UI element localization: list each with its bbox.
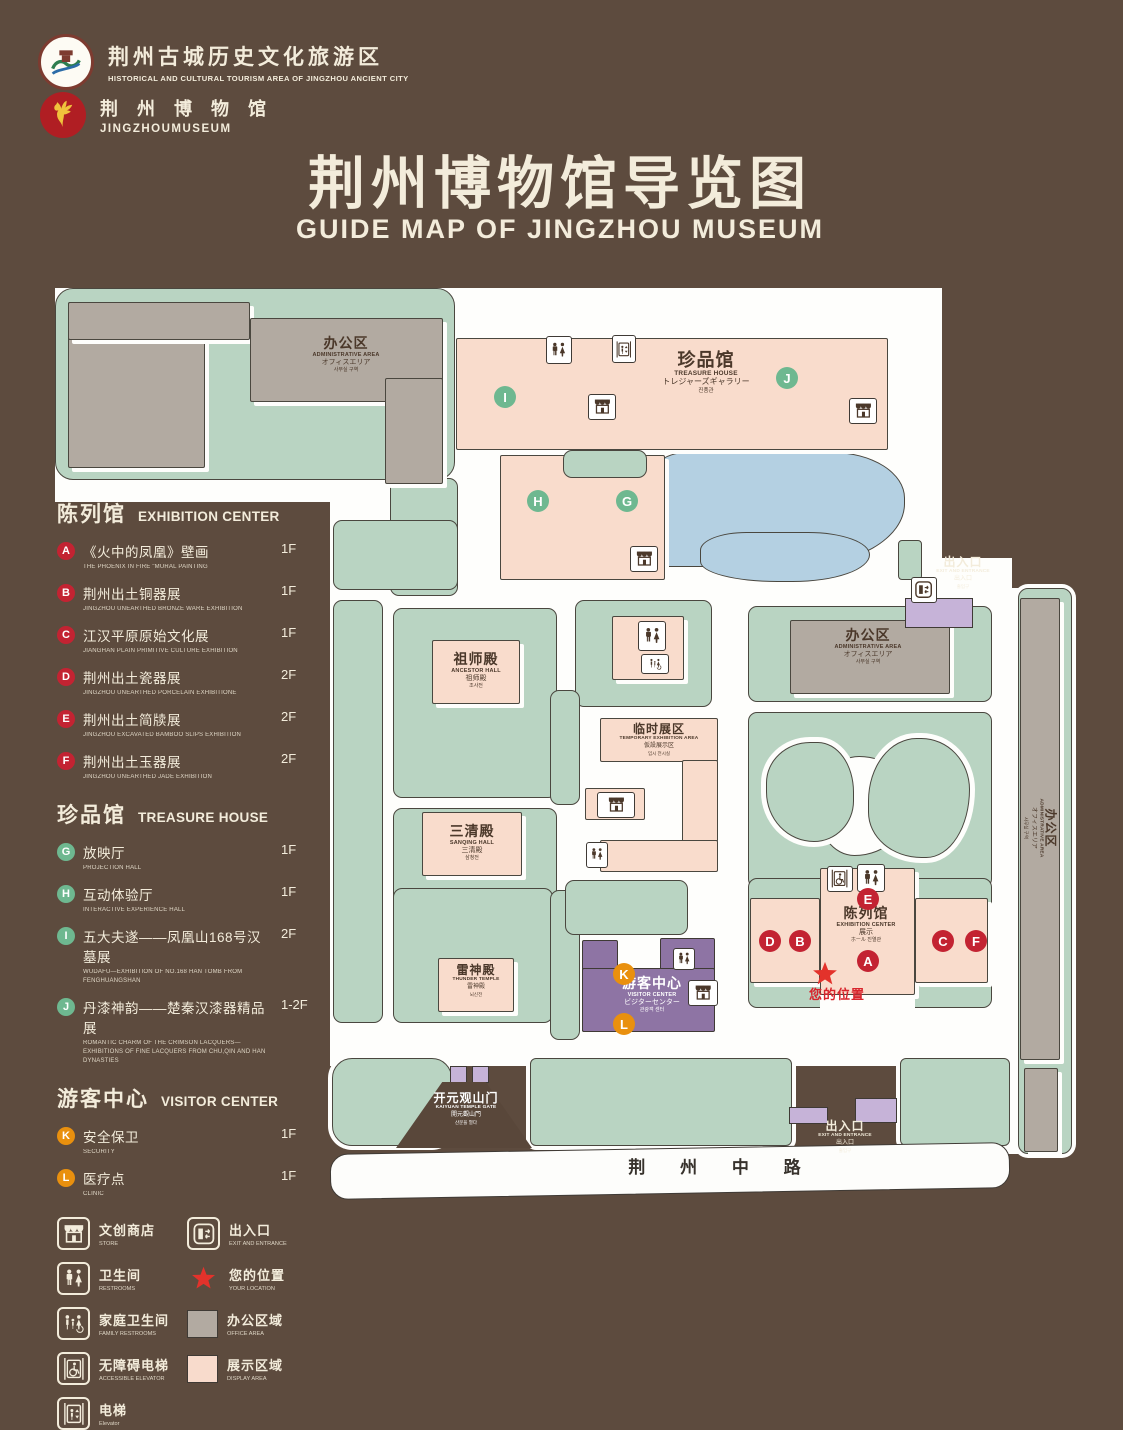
marker-K: K [613, 963, 635, 985]
legend-item-floor: 1F [279, 583, 311, 598]
label-admin-right-kr: 사무실 구역 [834, 660, 901, 666]
legend-item-zh: 荆州出土简牍展 [83, 709, 271, 729]
legend-symbol-en: Elevator [99, 1421, 127, 1427]
label-road-name-zh: 荆 州 中 路 [628, 1158, 815, 1177]
garden-island-right [868, 738, 970, 858]
label-exit-top-right: 出入口EXIT AND ENTRANCE出入口출입구 [936, 556, 990, 589]
legend-symbol-store: 文创商店STORE [57, 1217, 181, 1250]
label-admin-top-left: 办公区ADMINISTRATIVE AREAオフィスエリア사무실 구역 [312, 336, 379, 373]
label-admin-right-zh: 办公区 [834, 628, 901, 644]
page-title-en: GUIDE MAP OF JINGZHOU MUSEUM [296, 214, 824, 245]
legend-item-B: B荆州出土铜器展JINGZHOU UNEARTHED BRONZE WARE E… [57, 583, 311, 614]
label-ancestor-hall: 祖师殿ANCESTOR HALL祖师殿조사전 [451, 652, 501, 689]
store-glyph-icon [634, 549, 655, 568]
legend-item-en: PROJECTION HALL [83, 864, 271, 873]
label-exhibition-center-en: EXHIBITION CENTER [836, 922, 895, 928]
legend-symbol-en: ACCESSIBLE ELEVATOR [99, 1376, 169, 1382]
label-treasure-house-jp: トレジャーズギャラリー [662, 378, 749, 387]
label-admin-right: 办公区ADMINISTRATIVE AREAオフィスエリア사무실 구역 [834, 628, 901, 665]
legend-item-E: E荆州出土简牍展JINGZHOU EXCAVATED BAMBOO SLIPS … [57, 709, 311, 740]
legend-item-floor: 2F [279, 926, 311, 941]
legend-item-C: C江汉平原原始文化展JIANGHAN PLAIN PRIMITIVE CULTU… [57, 625, 311, 656]
legend-symbol-elevator: 电梯Elevator [57, 1397, 181, 1430]
marker-E: E [857, 888, 879, 910]
legend-item-D: D荆州出土瓷器展JINGZHOU UNEARTHED PORCELAIN EXH… [57, 667, 311, 698]
legend-symbol-zh: 文创商店 [99, 1220, 155, 1239]
label-sanqing-hall-zh: 三清殿 [450, 824, 495, 840]
label-kaiyuan-gate-kr: 산문을 열다 [433, 1120, 498, 1125]
restroom-glyph-icon [676, 951, 692, 967]
legend-symbols: 文创商店STORE出入口EXIT AND ENTRANCE卫生间RESTROOM… [57, 1217, 311, 1430]
legend-item-floor: 1F [279, 1126, 311, 1141]
legend-item-floor: 1F [279, 1168, 311, 1183]
building-admin-strip-2 [1024, 1068, 1058, 1152]
legend-badge-K: K [57, 1127, 75, 1145]
legend-symbol-star: 您的位置YOUR LOCATION [187, 1262, 311, 1295]
legend-symbol-text: 文创商店STORE [99, 1220, 155, 1247]
legend-symbol-text: 卫生间RESTROOMS [99, 1265, 141, 1292]
legend-badge-D: D [57, 668, 75, 686]
restroom-icon [546, 336, 572, 364]
legend-section-header: 游客中心VISITOR CENTER [57, 1083, 311, 1113]
legend-badge-E: E [57, 710, 75, 728]
your-location-icon [187, 1262, 220, 1295]
family-icon [641, 654, 669, 674]
marker-B: B [789, 930, 811, 952]
label-admin-strip-kr: 사무실 구역 [1024, 799, 1029, 858]
plot-temp-bottom [565, 880, 688, 935]
label-temporary-exhibition: 临时展区TEMPORARY EXHIBITION AREA仮設展示区임시 전시실 [620, 723, 699, 756]
label-admin-right-en: ADMINISTRATIVE AREA [834, 644, 901, 650]
legend-item-text: 安全保卫SECURITY [83, 1126, 271, 1157]
plot-temp-strip-a [550, 690, 580, 805]
label-kaiyuan-gate-en: KAIYUAN TEMPLE GATE [433, 1105, 498, 1110]
family-glyph-icon [62, 1312, 86, 1336]
legend-item-zh: 丹漆神韵——楚秦汉漆器精品展 [83, 997, 271, 1037]
store-icon [597, 792, 635, 818]
legend-item-floor: 1F [279, 842, 311, 857]
legend-symbol-text: 电梯Elevator [99, 1400, 127, 1427]
label-temporary-exhibition-kr: 임시 전시실 [620, 751, 699, 756]
legend-symbol-text: 您的位置YOUR LOCATION [229, 1265, 285, 1292]
lake-lobe [700, 532, 870, 582]
building-temp-right [682, 760, 718, 842]
tourism-area-logo: 荆州古城历史文化旅游区 HISTORICAL AND CULTURAL TOUR… [38, 34, 409, 90]
exit-glyph-icon [914, 580, 933, 599]
legend-item-zh: 放映厅 [83, 842, 271, 862]
legend-item-I: I五大夫遂——凤凰山168号汉墓展WUDAFU—EXHIBITION OF NO… [57, 926, 311, 986]
legend-symbol-en: EXIT AND ENTRANCE [229, 1241, 287, 1247]
legend-item-zh: 五大夫遂——凤凰山168号汉墓展 [83, 926, 271, 966]
legend-item-zh: 互动体验厅 [83, 884, 271, 904]
legend-item-zh: 荆州出土瓷器展 [83, 667, 271, 687]
legend-item-zh: 安全保卫 [83, 1126, 271, 1146]
legend-symbol-zh: 卫生间 [99, 1265, 141, 1284]
legend-item-en: THE PHOENIX IN FIRE "MURAL PAINTING [83, 563, 271, 572]
building-temp-bottom [600, 840, 718, 872]
plot-left-column [333, 600, 383, 1023]
museum-name-en: JINGZHOUMUSEUM [100, 123, 273, 135]
legend-item-zh: 荆州出土铜器展 [83, 583, 271, 603]
legend-symbol-en: FAMILY RESTROOMS [99, 1331, 169, 1337]
label-exhibition-center: 陈列馆EXHIBITION CENTER展示ホール 진열관 [836, 906, 895, 943]
label-your-location: 您的位置 [809, 988, 865, 1003]
legend-section-title-en: TREASURE HOUSE [138, 810, 268, 825]
legend-item-en: JINGZHOU UNEARTHED PORCELAIN EXHIBITIONE [83, 689, 271, 698]
legend-item-floor: 2F [279, 709, 311, 724]
legend-item-en: WUDAFU—EXHIBITION OF NO.168 HAN TOMB FRO… [83, 968, 271, 986]
label-ancestor-hall-kr: 조사전 [451, 684, 501, 690]
store-glyph-icon [62, 1222, 86, 1246]
legend-badge-C: C [57, 626, 75, 644]
legend-item-L: L医疗点CLINIC1F [57, 1168, 311, 1199]
label-visitor-center-jp: ビジターセンター [622, 999, 682, 1007]
legend-badge-I: I [57, 927, 75, 945]
legend-item-en: ROMANTIC CHARM OF THE CRIMSON LACQUERS—E… [83, 1039, 271, 1066]
legend-item-J: J丹漆神韵——楚秦汉漆器精品展ROMANTIC CHARM OF THE CRI… [57, 997, 311, 1066]
label-temporary-exhibition-zh: 临时展区 [620, 723, 699, 736]
label-exit-top-right-jp: 出入口 [936, 576, 990, 583]
building-admin-tl-b [68, 302, 250, 340]
marker-I: I [494, 386, 516, 408]
exit-glyph-icon [192, 1222, 216, 1246]
legend-item-zh: 荆州出土玉器展 [83, 751, 271, 771]
garden-island-left [766, 742, 854, 842]
legend-item-en: SECURITY [83, 1148, 271, 1157]
legend-symbol-zh: 出入口 [229, 1220, 287, 1239]
legend-item-H: H互动体验厅INTERACTIVE EXPERIENCE HALL1F [57, 884, 311, 915]
label-thunder-temple-zh: 雷神殿 [452, 964, 499, 977]
label-admin-strip-jp: オフィスエリア [1030, 799, 1037, 858]
marker-F: F [965, 930, 987, 952]
restroom-glyph-icon [642, 625, 663, 647]
legend-item-floor: 2F [279, 667, 311, 682]
label-ancestor-hall-zh: 祖师殿 [451, 652, 501, 668]
label-sanqing-hall-en: SANQING HALL [450, 840, 495, 846]
store-icon [688, 980, 718, 1006]
plot-mid-left-upper [333, 520, 458, 590]
legend-section-header: 珍品馆TREASURE HOUSE [57, 799, 311, 829]
strip-bottom-right [900, 1058, 1010, 1146]
family-icon [57, 1307, 90, 1340]
legend-symbol-en: YOUR LOCATION [229, 1286, 285, 1292]
legend-item-en: INTERACTIVE EXPERIENCE HALL [83, 906, 271, 915]
legend-section-title-en: VISITOR CENTER [161, 1094, 278, 1109]
elevator-glyph-icon [615, 339, 633, 360]
your-location-star-icon [811, 960, 839, 988]
legend-item-text: 荆州出土铜器展JINGZHOU UNEARTHED BRONZE WARE EX… [83, 583, 271, 614]
legend-symbol-office: 办公区域OFFICE AREA [187, 1307, 311, 1340]
legend-symbol-en: RESTROOMS [99, 1286, 141, 1292]
label-temporary-exhibition-jp: 仮設展示区 [620, 743, 699, 750]
tourism-area-name-en: HISTORICAL AND CULTURAL TOURISM AREA OF … [108, 74, 409, 83]
legend-item-zh: 医疗点 [83, 1168, 271, 1188]
label-sanqing-hall-kr: 삼청전 [450, 856, 495, 862]
legend-sidebar: 陈列馆EXHIBITION CENTERA《火中的凤凰》壁画THE PHOENI… [57, 498, 311, 1430]
label-visitor-center-kr: 관광객 센터 [622, 1008, 682, 1014]
label-thunder-temple-jp: 雷神殿 [452, 984, 499, 991]
marker-J: J [776, 367, 798, 389]
label-admin-strip-zh: 办公区 [1043, 799, 1056, 858]
legend-item-floor: 2F [279, 751, 311, 766]
legend-item-en: JIANGHAN PLAIN PRIMITIVE CULTURE EXHIBIT… [83, 647, 271, 656]
elevator-glyph-icon [62, 1402, 86, 1426]
legend-symbol-en: OFFICE AREA [227, 1331, 283, 1337]
label-exit-top-right-zh: 出入口 [936, 556, 990, 569]
museum-name-zh: 荆 州 博 物 馆 [100, 95, 273, 121]
label-treasure-house-zh: 珍品馆 [662, 350, 749, 370]
legend-symbol-text: 出入口EXIT AND ENTRANCE [229, 1220, 287, 1247]
legend-badge-B: B [57, 584, 75, 602]
label-sanqing-hall-jp: 三清殿 [450, 847, 495, 855]
accessible-glyph-icon [62, 1357, 86, 1381]
gate-pillar-2 [472, 1066, 489, 1083]
legend-badge-H: H [57, 885, 75, 903]
tourism-area-name-zh: 荆州古城历史文化旅游区 [108, 41, 409, 71]
label-exit-bottom-right-en: EXIT AND ENTRANCE [818, 1133, 872, 1138]
legend-item-text: 荆州出土玉器展JINGZHOU UNEARTHED JADE EXHIBITIO… [83, 751, 271, 782]
legend-badge-F: F [57, 752, 75, 770]
legend-item-text: 医疗点CLINIC [83, 1168, 271, 1199]
display-swatch [187, 1355, 218, 1383]
restroom-glyph-icon [62, 1267, 86, 1291]
store-glyph-icon [602, 795, 631, 814]
legend-item-text: 互动体验厅INTERACTIVE EXPERIENCE HALL [83, 884, 271, 915]
legend-item-zh: 江汉平原原始文化展 [83, 625, 271, 645]
label-kaiyuan-gate-zh: 开元观山门 [433, 1092, 498, 1105]
accessible-icon [827, 866, 853, 892]
label-admin-top-left-en: ADMINISTRATIVE AREA [312, 352, 379, 358]
legend-symbol-text: 无障碍电梯ACCESSIBLE ELEVATOR [99, 1355, 169, 1382]
legend-section-title-zh: 游客中心 [57, 1083, 149, 1113]
legend-item-text: 《火中的凤凰》壁画THE PHOENIX IN FIRE "MURAL PAIN… [83, 541, 271, 572]
restroom-icon [57, 1262, 90, 1295]
exit-icon [187, 1217, 220, 1250]
restroom-glyph-icon [589, 845, 605, 864]
gate-pillar-1 [450, 1066, 467, 1083]
marker-L: L [613, 1013, 635, 1035]
legend-item-text: 丹漆神韵——楚秦汉漆器精品展ROMANTIC CHARM OF THE CRIM… [83, 997, 271, 1066]
label-ancestor-hall-jp: 祖师殿 [451, 675, 501, 683]
label-exhibition-center-kr: ホール 진열관 [836, 938, 895, 944]
restroom-glyph-icon [861, 868, 882, 889]
legend-symbol-text: 办公区域OFFICE AREA [227, 1310, 283, 1337]
label-sanqing-hall: 三清殿SANQING HALL三清殿삼청전 [450, 824, 495, 861]
museum-logo: 荆 州 博 物 馆 JINGZHOUMUSEUM [40, 92, 273, 138]
legend-item-text: 江汉平原原始文化展JIANGHAN PLAIN PRIMITIVE CULTUR… [83, 625, 271, 656]
legend-symbol-zh: 电梯 [99, 1400, 127, 1419]
legend-badge-L: L [57, 1169, 75, 1187]
legend-section-title-zh: 陈列馆 [57, 498, 126, 528]
accessible-glyph-icon [830, 869, 849, 888]
label-admin-right-jp: オフィスエリア [834, 651, 901, 659]
label-exit-bottom-right-kr: 출입구 [818, 1148, 872, 1153]
legend-item-G: G放映厅PROJECTION HALL1F [57, 842, 311, 873]
store-icon [57, 1217, 90, 1250]
tourism-area-emblem-icon [38, 34, 94, 90]
label-exit-top-right-kr: 출입구 [936, 584, 990, 589]
family-glyph-icon [645, 657, 666, 671]
building-admin-tl-d [385, 378, 443, 484]
label-treasure-house: 珍品馆TREASURE HOUSEトレジャーズギャラリー진품관 [662, 350, 749, 395]
legend-symbol-zh: 无障碍电梯 [99, 1355, 169, 1374]
restroom-icon [586, 842, 608, 868]
legend-symbol-accessible: 无障碍电梯ACCESSIBLE ELEVATOR [57, 1352, 181, 1385]
label-exit-bottom-right: 出入口EXIT AND ENTRANCE出入口출입구 [818, 1120, 872, 1153]
legend-item-F: F荆州出土玉器展JINGZHOU UNEARTHED JADE EXHIBITI… [57, 751, 311, 782]
legend-item-text: 放映厅PROJECTION HALL [83, 842, 271, 873]
star-glyph-icon [190, 1265, 217, 1292]
plot-treasure-strip [563, 450, 647, 478]
elevator-icon [57, 1397, 90, 1430]
legend-item-floor: 1-2F [279, 997, 311, 1012]
restroom-glyph-icon [549, 340, 568, 361]
legend-item-en: CLINIC [83, 1190, 271, 1199]
label-kaiyuan-gate: 开元观山门KAIYUAN TEMPLE GATE開元觀山門산문을 열다 [433, 1092, 498, 1125]
legend-symbol-exit: 出入口EXIT AND ENTRANCE [187, 1217, 311, 1250]
marker-H: H [527, 490, 549, 512]
exit-icon [911, 577, 937, 603]
museum-emblem-icon [40, 92, 86, 138]
legend-symbol-zh: 办公区域 [227, 1310, 283, 1329]
label-thunder-temple-kr: 뇌신전 [452, 992, 499, 997]
legend-symbol-family: 家庭卫生间FAMILY RESTROOMS [57, 1307, 181, 1340]
label-exit-top-right-en: EXIT AND ENTRANCE [936, 569, 990, 574]
label-admin-top-left-jp: オフィスエリア [312, 359, 379, 367]
legend-item-text: 荆州出土瓷器展JINGZHOU UNEARTHED PORCELAIN EXHI… [83, 667, 271, 698]
restroom-icon [638, 621, 666, 651]
label-admin-top-left-kr: 사무실 구역 [312, 368, 379, 374]
store-icon [588, 394, 616, 420]
legend-item-floor: 1F [279, 541, 311, 556]
legend-badge-J: J [57, 998, 75, 1016]
legend-item-K: K安全保卫SECURITY1F [57, 1126, 311, 1157]
label-admin-top-left-zh: 办公区 [312, 336, 379, 352]
strip-bottom-mid [530, 1058, 792, 1146]
legend-badge-G: G [57, 843, 75, 861]
legend-section-title-zh: 珍品馆 [57, 799, 126, 829]
marker-C: C [932, 930, 954, 952]
exit-top-stub [898, 540, 922, 580]
store-icon [630, 546, 658, 572]
restroom-icon [673, 948, 695, 970]
label-thunder-temple-en: THUNDER TEMPLE [452, 977, 499, 982]
label-thunder-temple: 雷神殿THUNDER TEMPLE雷神殿뇌신전 [452, 964, 499, 997]
marker-D: D [759, 930, 781, 952]
legend-item-text: 五大夫遂——凤凰山168号汉墓展WUDAFU—EXHIBITION OF NO.… [83, 926, 271, 986]
legend-item-en: JINGZHOU EXCAVATED BAMBOO SLIPS EXHIBITI… [83, 731, 271, 740]
legend-symbol-text: 展示区域DISPLAY AREA [227, 1355, 283, 1382]
legend-section-header: 陈列馆EXHIBITION CENTER [57, 498, 311, 528]
label-exit-bottom-right-jp: 出入口 [818, 1140, 872, 1147]
label-admin-strip-en: ADMINISTRATIVE AREA [1037, 799, 1042, 858]
legend-item-en: JINGZHOU UNEARTHED BRONZE WARE EXHIBITIO… [83, 605, 271, 614]
label-treasure-house-kr: 진품관 [662, 388, 749, 394]
label-ancestor-hall-en: ANCESTOR HALL [451, 668, 501, 674]
legend-section-title-en: EXHIBITION CENTER [138, 509, 280, 524]
legend-item-zh: 《火中的凤凰》壁画 [83, 541, 271, 561]
accessible-icon [57, 1352, 90, 1385]
page-title-zh: 荆州博物馆导览图 [308, 138, 812, 220]
legend-item-floor: 1F [279, 884, 311, 899]
marker-A: A [857, 950, 879, 972]
legend-item-floor: 1F [279, 625, 311, 640]
label-kaiyuan-gate-jp: 開元觀山門 [433, 1112, 498, 1119]
legend-item-A: A《火中的凤凰》壁画THE PHOENIX IN FIRE "MURAL PAI… [57, 541, 311, 572]
star-icon [811, 960, 839, 988]
label-your-location-zh: 您的位置 [809, 988, 865, 1003]
label-admin-strip: 办公区ADMINISTRATIVE AREAオフィスエリア사무실 구역 [1024, 799, 1057, 858]
legend-item-text: 荆州出土简牍展JINGZHOU EXCAVATED BAMBOO SLIPS E… [83, 709, 271, 740]
label-visitor-center-en: VISITOR CENTER [622, 992, 682, 998]
store-glyph-icon [592, 397, 613, 416]
legend-symbol-zh: 您的位置 [229, 1265, 285, 1284]
store-glyph-icon [692, 983, 714, 1002]
marker-G: G [616, 490, 638, 512]
label-exit-bottom-right-zh: 出入口 [818, 1120, 872, 1133]
label-temporary-exhibition-en: TEMPORARY EXHIBITION AREA [620, 736, 699, 741]
legend-badge-A: A [57, 542, 75, 560]
legend-symbol-restroom: 卫生间RESTROOMS [57, 1262, 181, 1295]
legend-symbol-en: STORE [99, 1241, 155, 1247]
legend-item-en: JINGZHOU UNEARTHED JADE EXHIBITION [83, 773, 271, 782]
legend-symbol-zh: 家庭卫生间 [99, 1310, 169, 1329]
label-road-name: 荆 州 中 路 [628, 1158, 815, 1177]
legend-symbol-en: DISPLAY AREA [227, 1376, 283, 1382]
label-exhibition-center-jp: 展示 [836, 929, 895, 937]
store-glyph-icon [853, 401, 874, 420]
office-swatch [187, 1310, 218, 1338]
legend-symbol-zh: 展示区域 [227, 1355, 283, 1374]
legend-symbol-display: 展示区域DISPLAY AREA [187, 1352, 311, 1385]
store-icon [849, 398, 877, 424]
elevator-icon [612, 335, 636, 363]
legend-symbol-text: 家庭卫生间FAMILY RESTROOMS [99, 1310, 169, 1337]
